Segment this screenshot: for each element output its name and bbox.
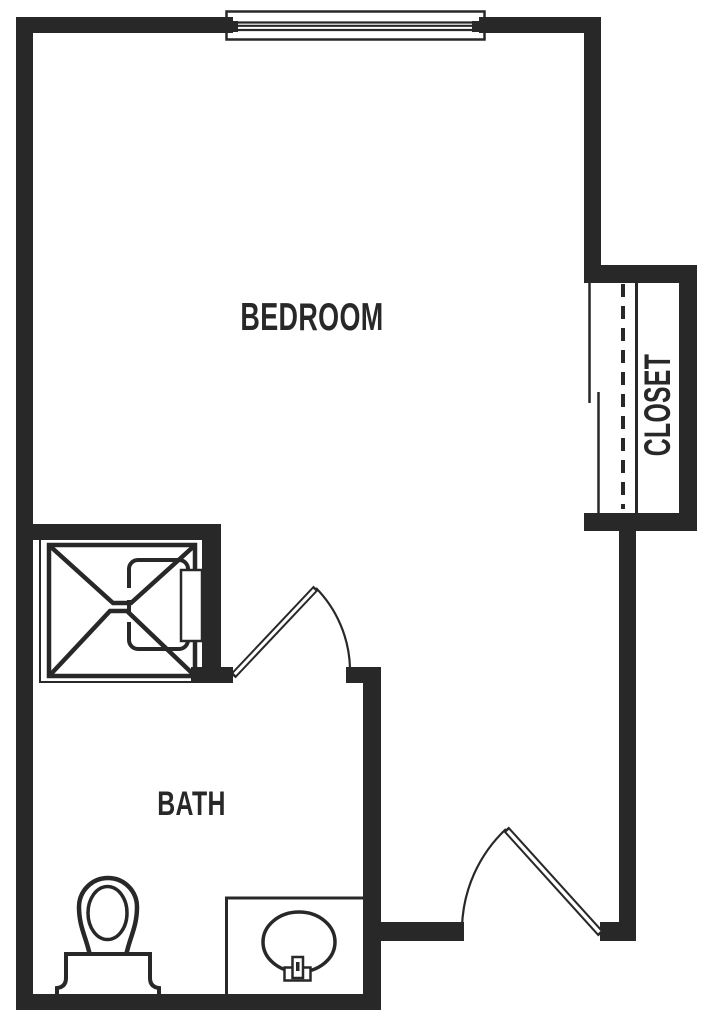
wall-bedroom-right <box>584 17 601 283</box>
shower-seat <box>129 560 188 649</box>
wall-left <box>16 17 33 1010</box>
bath-door <box>233 588 350 676</box>
sink-vanity <box>227 898 367 996</box>
bath-label: BATH <box>157 785 226 823</box>
bedroom-label: BEDROOM <box>240 296 383 339</box>
shower-seat-mount <box>181 570 202 641</box>
wall-shower-bar <box>204 524 221 672</box>
shower <box>40 539 203 682</box>
wall-bath-top <box>16 524 221 540</box>
shower-drain-cross <box>51 547 193 674</box>
wall-shower-foot <box>191 667 233 683</box>
bath-door-swing-arc <box>316 588 350 668</box>
floor-plan-page: BEDROOM BATH CLOSET <box>0 0 707 1031</box>
bath-door-leaf-inner <box>235 590 315 674</box>
wall-closet-right <box>679 265 697 531</box>
faucet-handle <box>296 962 300 971</box>
window-sash-right <box>472 21 481 32</box>
window-sash-left <box>230 21 239 32</box>
closet-interior <box>590 283 637 513</box>
entry-door-leaf-inner <box>508 831 600 932</box>
walls <box>16 17 697 1010</box>
entry-door-swing-arc <box>462 829 506 927</box>
wall-bath-right <box>363 667 381 1010</box>
window <box>227 12 485 40</box>
wall-top-left <box>16 17 233 33</box>
floor-plan: BEDROOM BATH CLOSET <box>0 0 707 1031</box>
window-glazing-lines <box>237 23 473 31</box>
entry-door <box>462 829 601 934</box>
wall-closet-bottom-stub <box>584 513 697 531</box>
wall-bathdoor-stub <box>346 667 365 683</box>
wall-entry-right-stub <box>600 922 636 941</box>
wall-top-right <box>479 17 601 33</box>
toilet <box>57 878 159 1002</box>
wall-right-lower <box>619 513 636 941</box>
wall-bottom <box>16 994 381 1010</box>
closet-label: CLOSET <box>636 354 678 457</box>
